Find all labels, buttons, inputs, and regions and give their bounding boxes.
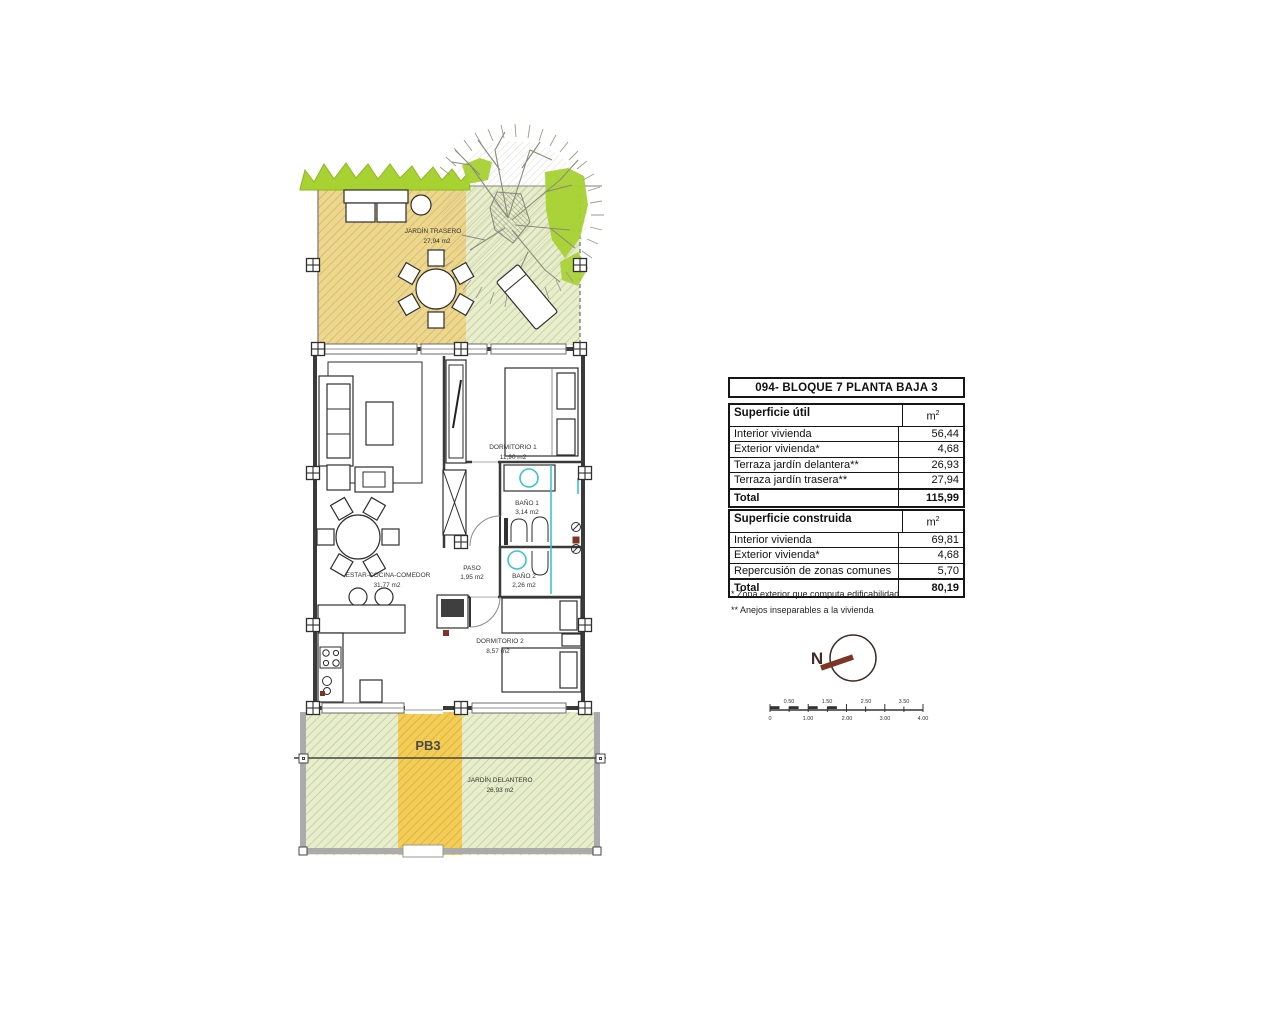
scale-tick-label: 1.50 bbox=[822, 699, 833, 705]
scale-tick-label: 2.50 bbox=[861, 699, 872, 705]
sofa-icon bbox=[319, 376, 353, 466]
unit-tag-label: PB3 bbox=[415, 738, 440, 753]
bedroom1-area: 11,90 m2 bbox=[500, 454, 527, 461]
utility-mark bbox=[443, 630, 449, 636]
table-title: Superficie construida bbox=[730, 511, 902, 532]
scale-tick-label: 3.00 bbox=[880, 716, 891, 722]
table-row: Interior vivienda 56,44 bbox=[730, 426, 963, 442]
living-area: 31,77 m2 bbox=[373, 582, 400, 589]
floorplan-drawing: JARDÍN TRASERO 27,94 m2 PB3 JARDÍN DELAN… bbox=[0, 0, 1280, 1024]
pillow bbox=[560, 652, 577, 688]
utility-mark bbox=[573, 537, 580, 544]
bedroom2-area: 8,57 m2 bbox=[486, 648, 510, 655]
garden-side-table bbox=[411, 195, 431, 215]
surface-util-table: Superficie útil m2 Interior vivienda 56,… bbox=[728, 403, 965, 508]
table-header: Superficie construida m2 bbox=[730, 511, 963, 532]
table-row: Repercusión de zonas comunes 5,70 bbox=[730, 563, 963, 579]
scale-tick-label: 0 bbox=[768, 716, 771, 722]
window-bedroom1 bbox=[491, 344, 566, 354]
table-row: Terraza jardín delantera** 26,93 bbox=[730, 457, 963, 473]
unit-header: m2 bbox=[902, 511, 963, 532]
corner-post bbox=[299, 847, 307, 855]
unit-header: m2 bbox=[902, 405, 963, 426]
living-label: ESTAR-COCINA-COMEDOR bbox=[346, 572, 431, 579]
bar-stool bbox=[349, 588, 367, 606]
table-header: Superficie útil m2 bbox=[730, 405, 963, 426]
front-door-opening bbox=[405, 702, 443, 714]
table-row: Interior vivienda 69,81 bbox=[730, 532, 963, 548]
scale-tick-label: 4.00 bbox=[918, 716, 929, 722]
window-living bbox=[325, 344, 417, 354]
footnote-exterior: * Zona exterior que computa edificabilid… bbox=[731, 589, 899, 599]
hall-label: PASO bbox=[463, 565, 481, 572]
kitchen-island bbox=[360, 680, 382, 702]
fence-post bbox=[299, 754, 308, 763]
front-garden-label: JARDÍN DELANTERO bbox=[467, 775, 532, 784]
access-path bbox=[398, 712, 462, 855]
table-total-row: Total 115,99 bbox=[730, 488, 963, 506]
footnote-anejos: ** Anejos inseparables a la vivienda bbox=[731, 605, 874, 615]
table-row: Terraza jardín trasera** 27,94 bbox=[730, 472, 963, 488]
hall-area: 1,95 m2 bbox=[460, 574, 484, 581]
shrub-band bbox=[300, 163, 470, 190]
appliance-column bbox=[437, 595, 468, 628]
floorplan-sheet: JARDÍN TRASERO 27,94 m2 PB3 JARDÍN DELAN… bbox=[0, 0, 1280, 1024]
utility-mark bbox=[320, 691, 325, 696]
window-kitchen bbox=[322, 703, 404, 713]
front-garden: PB3 JARDÍN DELANTERO 26,93 m2 bbox=[294, 712, 606, 857]
scale-tick-label: 3.50 bbox=[899, 699, 910, 705]
front-garden-area: 26,93 m2 bbox=[486, 787, 513, 794]
wardrobe-x bbox=[443, 470, 466, 535]
vanity bbox=[504, 518, 508, 545]
nightstand bbox=[562, 634, 581, 646]
fence-post bbox=[596, 754, 605, 763]
entry-step bbox=[403, 845, 443, 857]
scale-tick-label: 1.00 bbox=[803, 716, 814, 722]
pillow bbox=[557, 373, 575, 409]
side-table bbox=[327, 465, 350, 490]
bath2-label: BAÑO 2 bbox=[512, 571, 536, 580]
back-garden: JARDÍN TRASERO 27,94 m2 bbox=[300, 124, 604, 345]
bath2-area: 2,26 m2 bbox=[512, 582, 536, 589]
bar-stool bbox=[375, 588, 393, 606]
window-bedroom2 bbox=[472, 703, 566, 713]
back-garden-area: 27,94 m2 bbox=[423, 238, 450, 245]
corner-post bbox=[593, 847, 601, 855]
tv-stand bbox=[355, 467, 393, 492]
bedroom1-label: DORMITORIO 1 bbox=[489, 444, 537, 451]
bedroom2-label: DORMITORIO 2 bbox=[476, 638, 524, 645]
bath1-area: 3,14 m2 bbox=[515, 509, 539, 516]
pillow bbox=[557, 419, 575, 455]
compass: N bbox=[811, 635, 876, 681]
scale-bar: 0.50 1.50 2.50 3.50 0 1.00 2.00 3.00 4.0… bbox=[768, 699, 928, 722]
north-label: N bbox=[811, 649, 823, 668]
north-needle-icon bbox=[821, 657, 853, 668]
wardrobe-mirror bbox=[446, 360, 466, 463]
bath1-label: BAÑO 1 bbox=[515, 498, 539, 507]
scale-tick-label: 0.50 bbox=[784, 699, 795, 705]
pillow bbox=[560, 601, 577, 630]
table-row: Exterior vivienda* 4,68 bbox=[730, 547, 963, 563]
surface-construida-table: Superficie construida m2 Interior vivien… bbox=[728, 509, 965, 598]
plan-title: 094- BLOQUE 7 PLANTA BAJA 3 bbox=[728, 377, 965, 398]
table-row: Exterior vivienda* 4,68 bbox=[730, 441, 963, 457]
scale-tick-label: 2.00 bbox=[842, 716, 853, 722]
table-title: Superficie útil bbox=[730, 405, 902, 426]
back-garden-label: JARDÍN TRASERO bbox=[405, 226, 462, 235]
coffee-table bbox=[366, 402, 393, 445]
